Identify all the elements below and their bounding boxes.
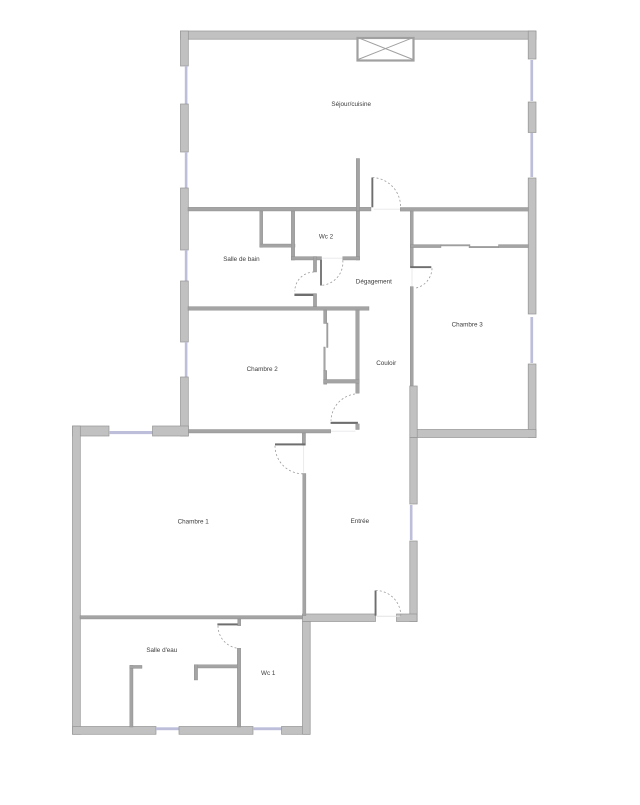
svg-text:Wc 1: Wc 1: [261, 670, 276, 677]
svg-text:Salle de bain: Salle de bain: [223, 256, 260, 263]
svg-text:Salle d'eau: Salle d'eau: [146, 647, 177, 654]
svg-text:Chambre 2: Chambre 2: [247, 366, 279, 373]
svg-text:Wc 2: Wc 2: [319, 234, 334, 241]
svg-text:Couloir: Couloir: [376, 360, 396, 367]
svg-text:Dégagement: Dégagement: [356, 279, 392, 286]
svg-text:Chambre 3: Chambre 3: [452, 321, 484, 328]
svg-text:Chambre 1: Chambre 1: [178, 519, 210, 526]
svg-text:Entrée: Entrée: [351, 518, 370, 525]
svg-text:Séjour/cuisine: Séjour/cuisine: [331, 101, 371, 108]
